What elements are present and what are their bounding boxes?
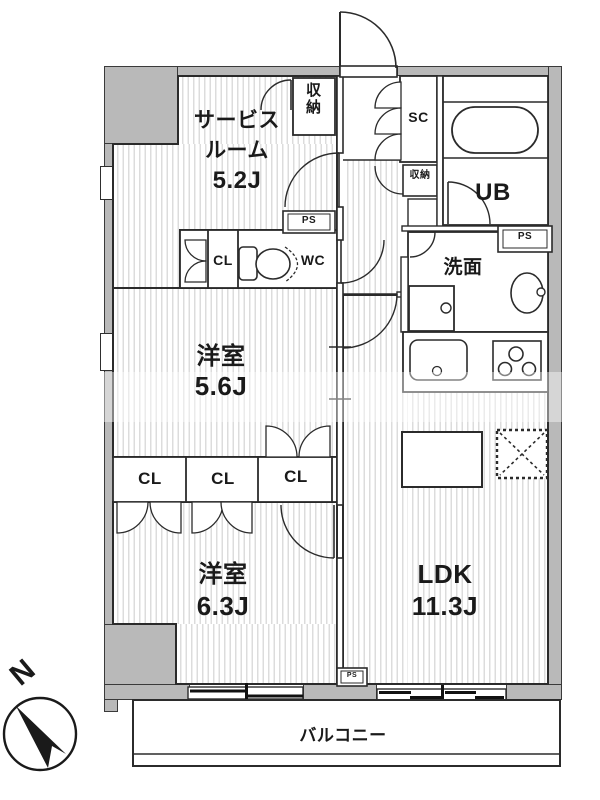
cl3-door-arc (266, 426, 297, 457)
refrigerator-space (497, 430, 547, 478)
shoe-closet-box (375, 76, 437, 227)
bedroom-lower-door (281, 505, 334, 558)
cl1-door-arc (117, 502, 148, 533)
washing-machine-space (409, 286, 454, 331)
shoe-closet-label: SC (400, 110, 437, 125)
wc-label: WC (295, 253, 331, 268)
service-room-size: 5.2J (177, 168, 297, 193)
service-room-label: ルーム (177, 140, 297, 162)
wc-door (341, 240, 384, 283)
ldk-door (343, 292, 408, 348)
cl2-door-arc (192, 502, 223, 533)
ps-label-bath: PS (500, 232, 550, 243)
bedroom-upper-size: 5.6J (172, 373, 270, 400)
service-room-label: サービス (177, 110, 297, 132)
closet3-label: CL (277, 468, 315, 486)
ldk-size: 11.3J (398, 593, 492, 620)
service-storage-label: 収納 (302, 82, 323, 132)
cl2-door-arc (221, 502, 252, 533)
storage-door-arc (261, 80, 291, 110)
cl1-door-arc (150, 502, 181, 533)
ps-label-ldk: PS (339, 672, 365, 679)
hall-storage-label: 収納 (402, 171, 438, 182)
sc-door-arc (375, 134, 401, 160)
bedroom-upper-label: 洋室 (172, 344, 270, 369)
sc-door-arc (375, 82, 401, 108)
bedroom-lower-size: 6.3J (174, 593, 272, 620)
entrance-door (340, 12, 397, 77)
unit-bath-label: UB (466, 180, 520, 205)
watermark-band (0, 372, 600, 422)
ps-label-service: PS (285, 216, 333, 227)
balcony-label: バルコニー (280, 727, 406, 745)
washroom-label: 洗面 (437, 258, 489, 278)
bedroom-lower-label: 洋室 (174, 562, 272, 587)
floor-plan: サービス ルーム 5.2J 収納 SC 収納 UB PS PS PS CL WC… (0, 0, 600, 800)
entrance-door-arc (340, 12, 396, 68)
hall-closet-label: CL (208, 253, 238, 268)
ldk-counter (402, 432, 482, 487)
ldk-label: LDK (402, 561, 488, 588)
bathtub (452, 107, 538, 153)
toilet-tank (239, 247, 257, 280)
sc-door-arc (375, 108, 401, 134)
compass (4, 698, 76, 770)
cl3-door-arc (299, 426, 330, 457)
unit-bath (437, 76, 548, 230)
toilet-bowl (256, 249, 290, 279)
hall-storage-door-arc (375, 166, 403, 194)
closet2-label: CL (204, 470, 242, 488)
closet1-label: CL (131, 470, 169, 488)
